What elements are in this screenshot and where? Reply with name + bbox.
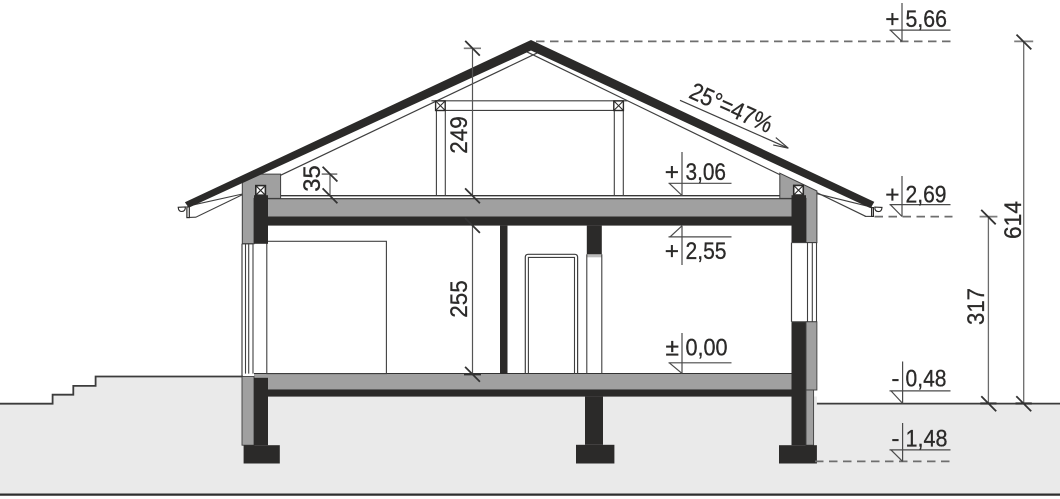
- svg-text:614: 614: [1000, 201, 1027, 239]
- svg-text:-: -: [891, 366, 899, 393]
- svg-text:2,69: 2,69: [906, 182, 947, 209]
- svg-text:3,06: 3,06: [686, 159, 727, 186]
- svg-text:±: ±: [666, 335, 679, 362]
- svg-text:35: 35: [299, 165, 326, 192]
- svg-text:1,48: 1,48: [906, 426, 948, 453]
- svg-text:+: +: [885, 182, 899, 209]
- svg-text:5,66: 5,66: [906, 6, 948, 33]
- svg-text:2,55: 2,55: [686, 238, 727, 265]
- svg-text:+: +: [665, 238, 679, 265]
- svg-text:0,00: 0,00: [686, 335, 728, 362]
- svg-text:+: +: [885, 6, 899, 33]
- svg-text:249: 249: [446, 116, 473, 154]
- svg-text:-: -: [891, 426, 899, 453]
- svg-text:0,48: 0,48: [906, 366, 947, 393]
- svg-text:255: 255: [446, 280, 473, 318]
- svg-text:+: +: [665, 159, 679, 186]
- svg-text:317: 317: [963, 288, 990, 325]
